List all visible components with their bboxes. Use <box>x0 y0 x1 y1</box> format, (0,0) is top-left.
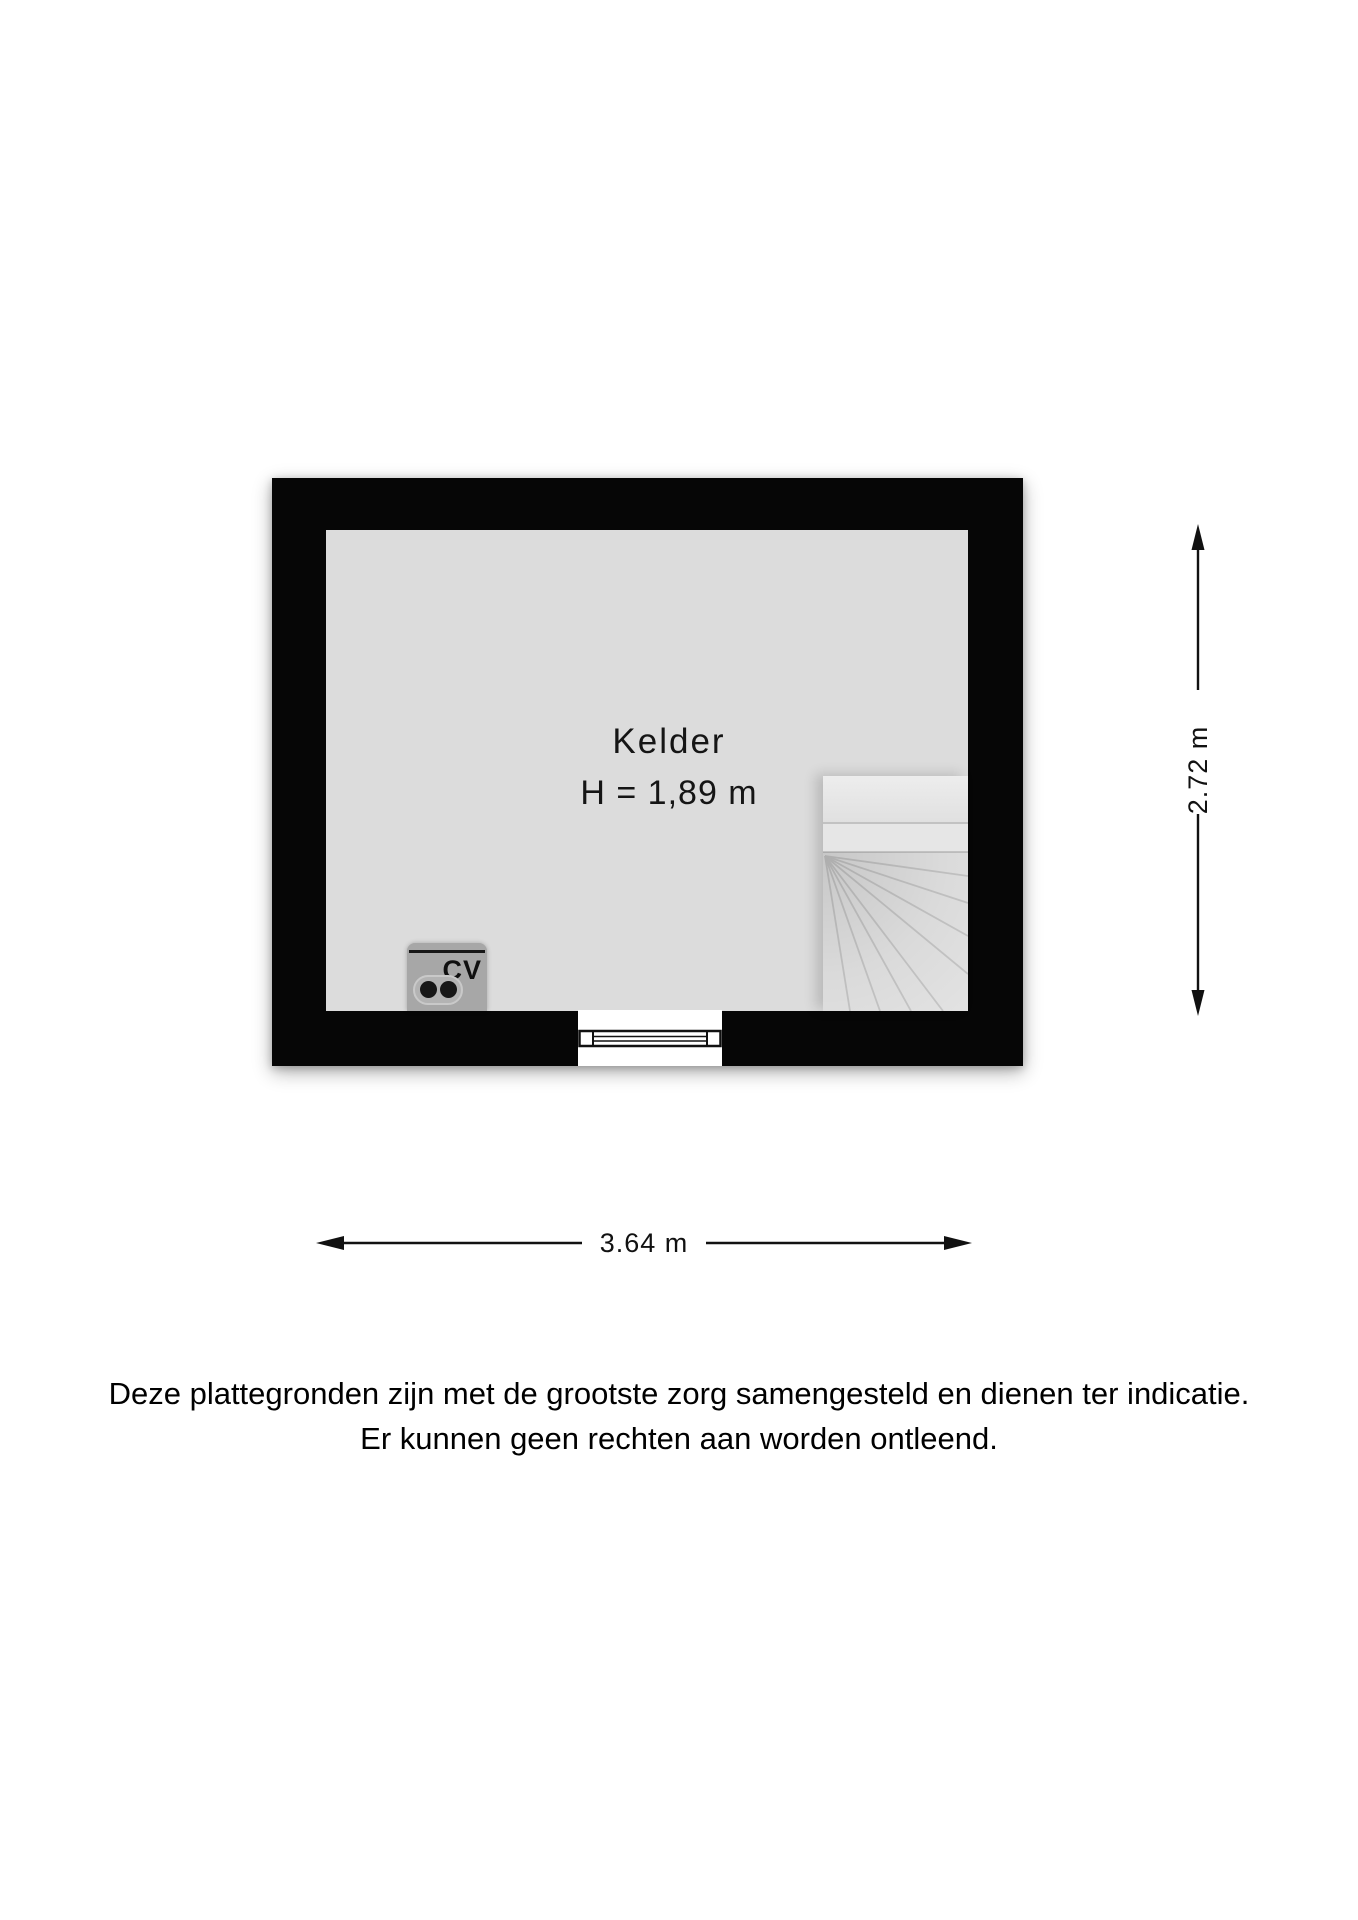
arrowhead-down-icon <box>1192 990 1205 1016</box>
cv-boiler: CV <box>407 943 487 1011</box>
disclaimer-line-1: Deze plattegronden zijn met de grootste … <box>0 1371 1358 1416</box>
room-name-label: Kelder <box>469 723 869 761</box>
basement-room: Kelder H = 1,89 m <box>326 530 968 1011</box>
cv-top-line <box>409 950 485 953</box>
floorplan-page: Kelder H = 1,89 m <box>0 0 1358 1920</box>
arrowhead-up-icon <box>1192 524 1205 550</box>
vertical-dimension-label: 2.72 m <box>1181 710 1215 830</box>
window <box>578 1010 722 1066</box>
arrowhead-right-icon <box>944 1236 972 1250</box>
window-symbol <box>578 1010 722 1066</box>
horizontal-dimension-label: 3.64 m <box>494 1227 794 1259</box>
floor-plan: Kelder H = 1,89 m <box>272 478 1023 1066</box>
knob-icon <box>420 981 437 998</box>
winder-staircase <box>823 776 968 1011</box>
room-labels: Kelder H = 1,89 m <box>469 723 869 812</box>
ceiling-height-label: H = 1,89 m <box>469 774 869 812</box>
disclaimer-line-2: Er kunnen geen rechten aan worden ontlee… <box>0 1416 1358 1461</box>
knob-icon <box>440 981 457 998</box>
disclaimer: Deze plattegronden zijn met de grootste … <box>0 1371 1358 1461</box>
staircase-drawing <box>823 776 968 1011</box>
arrowhead-left-icon <box>316 1236 344 1250</box>
burner-knobs <box>413 975 463 1005</box>
